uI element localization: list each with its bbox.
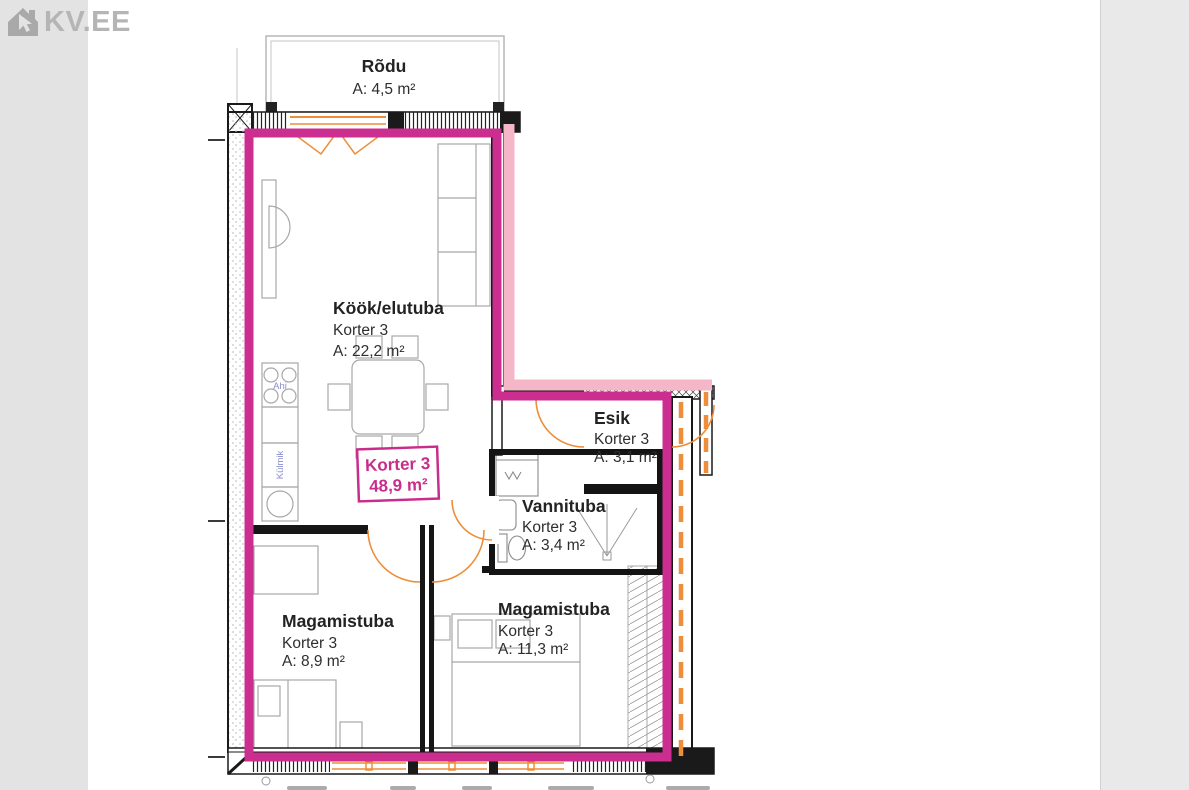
page-margin-left [0, 0, 88, 790]
room-unit: Korter 3 [594, 431, 649, 448]
room-area: A: 4,5 m² [353, 81, 416, 98]
room-label-vannituba: Vannituba Korter 3 A: 3,4 m² [522, 496, 606, 554]
room-name: Köök/elutuba [333, 298, 444, 318]
nightstand [340, 722, 362, 748]
room-unit: Korter 3 [522, 519, 577, 536]
room-label-magamistuba-1: Magamistuba Korter 3 A: 8,9 m² [282, 611, 394, 670]
room-name: Vannituba [522, 496, 606, 516]
unit-badge: Korter 3 48,9 m² [357, 447, 439, 502]
room-area: A: 3,4 m² [522, 537, 585, 554]
room-area: A: 8,9 m² [282, 653, 345, 670]
room-name: Magamistuba [282, 611, 394, 631]
tv-icon [269, 206, 290, 248]
room-label-esik: Esik Korter 3 A: 3,1 m² [594, 408, 657, 466]
room-area: A: 22,2 m² [333, 343, 405, 360]
unit-badge-name: Korter 3 [365, 454, 431, 475]
washing-machine [496, 452, 538, 496]
nightstand [434, 616, 450, 640]
pillow [258, 686, 280, 716]
bedroom2-door-arc [432, 530, 484, 582]
room-unit: Korter 3 [498, 623, 553, 640]
house-cursor-icon [6, 5, 40, 39]
bathroom-door-arc [452, 500, 492, 540]
bedroom1-door-arc [368, 530, 420, 582]
room-name: Rõdu [362, 56, 407, 76]
kitchen-counter [262, 407, 298, 443]
room-unit: Korter 3 [333, 322, 388, 339]
unit-outline-shadow [509, 124, 712, 385]
room-label-kook-elutuba: Köök/elutuba Korter 3 A: 22,2 m² [333, 298, 444, 360]
room-area: A: 11,3 m² [498, 641, 568, 658]
bed [254, 680, 336, 750]
room-name: Esik [594, 408, 630, 428]
room-label-magamistuba-2: Magamistuba Korter 3 A: 11,3 m² [498, 599, 610, 658]
bedroom1-wall [252, 525, 368, 534]
kv-ee-logo: KV.EE [6, 5, 131, 39]
unit-badge-area: 48,9 m² [369, 475, 429, 496]
pillow [458, 620, 492, 648]
fridge-label: Külmik [275, 451, 286, 480]
stove-label: Ahi [273, 381, 287, 392]
kitchen-sink [267, 491, 293, 517]
bedroom-partition-wall [420, 525, 425, 758]
room-unit: Korter 3 [282, 635, 337, 652]
page: KV.EE [0, 0, 1189, 790]
toilet-tank [498, 534, 507, 562]
chair [328, 384, 350, 410]
room-label-rodu: Rõdu A: 4,5 m² [353, 56, 416, 98]
wardrobe [254, 546, 318, 594]
sofa [438, 144, 490, 306]
hall-door-arc [536, 399, 584, 447]
bedroom2-furniture [434, 566, 666, 752]
floor-plan: Korter 3 48,9 m² Rõdu A: 4,5 m² Köök/elu… [200, 28, 740, 790]
room-area: A: 3,1 m² [594, 449, 657, 466]
page-margin-right [1100, 0, 1189, 790]
logo-text: KV.EE [44, 5, 131, 39]
room-name: Magamistuba [498, 599, 610, 619]
dining-table [352, 360, 424, 434]
chair [426, 384, 448, 410]
